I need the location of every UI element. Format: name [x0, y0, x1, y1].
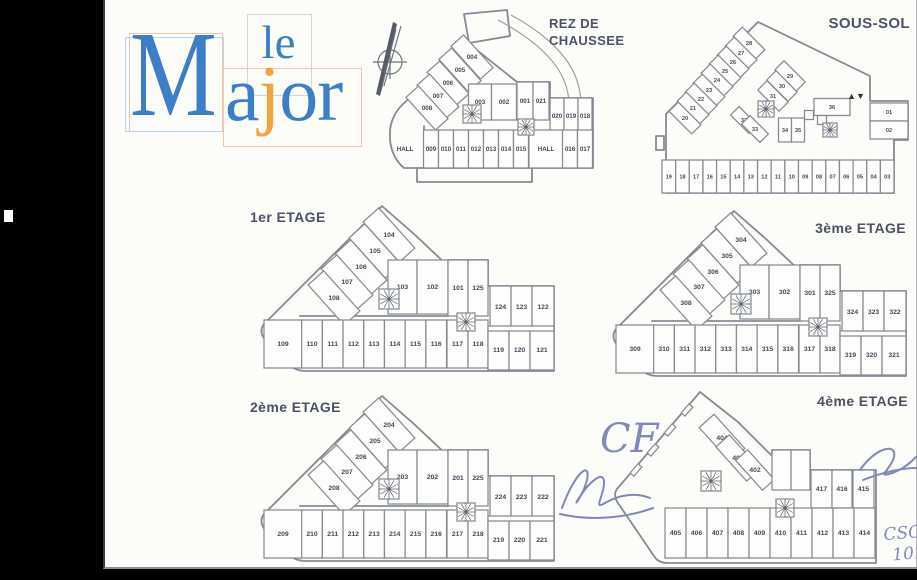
room-label: 311	[679, 346, 690, 353]
plan-outline	[464, 10, 510, 43]
room-label: 007	[433, 93, 444, 100]
hall-label: HALL	[538, 146, 555, 153]
room-label: 225	[472, 475, 484, 482]
room-label: 313	[720, 346, 732, 353]
room-label: 317	[804, 346, 816, 353]
room-label: 319	[845, 352, 857, 359]
room-label: 416	[836, 486, 848, 493]
room-label: 07	[829, 175, 835, 181]
room-label: 125	[472, 285, 484, 292]
room-label: 405	[670, 530, 682, 537]
room-label: 018	[580, 113, 591, 120]
room-label: 36	[829, 105, 835, 111]
room-label: 322	[889, 309, 901, 316]
room-label: 101	[452, 285, 464, 292]
stair-spiral-icon	[823, 123, 837, 137]
room-label: 112	[348, 341, 359, 348]
room-label: 22	[698, 97, 704, 103]
hall-label: HALL	[397, 146, 414, 153]
plan-cell	[791, 450, 810, 490]
plan-outline	[656, 136, 664, 150]
room-label: 208	[328, 485, 340, 492]
plan-title: 1er ETAGE	[250, 209, 326, 225]
room-label: 221	[536, 537, 548, 544]
floor-plan-sous-sol: 2827262524232221202930313233343536010219…	[652, 8, 917, 198]
room-label: 013	[486, 146, 497, 153]
room-label: 110	[307, 341, 318, 348]
room-label: 210	[306, 531, 318, 538]
room-label: 415	[858, 486, 870, 493]
room-label: 318	[824, 346, 836, 353]
room-label: 11	[775, 175, 781, 181]
room-label: 306	[707, 269, 719, 276]
room-label: 121	[536, 347, 548, 354]
plan-title: 4ème ETAGE	[817, 393, 908, 409]
room-label: 17	[693, 175, 699, 181]
stair-spiral-icon	[809, 318, 827, 336]
room-label: 010	[441, 146, 452, 153]
room-label: 107	[341, 279, 353, 286]
room-label: 316	[783, 346, 795, 353]
stair-spiral-icon	[463, 105, 481, 123]
room-label: 20	[682, 116, 688, 122]
room-label: 124	[495, 304, 507, 311]
plan-cell	[772, 450, 791, 490]
room-label: 23	[706, 88, 712, 94]
room-label: 109	[277, 341, 289, 348]
room-label: 324	[847, 309, 859, 316]
room-label: 118	[473, 341, 484, 348]
room-label: 411	[796, 530, 807, 537]
room-label: 211	[327, 531, 338, 538]
room-label: 08	[816, 175, 822, 181]
floor-plan-rez-de-chaussee: 0040050060070080030020010210200190180090…	[372, 8, 652, 193]
room-label: 26	[730, 60, 736, 66]
floor-plan-3eme-etage: 3043053063073083033023013253243233223093…	[594, 203, 914, 388]
plan-cell	[488, 326, 554, 331]
room-label: 10	[789, 175, 795, 181]
room-label: 302	[779, 289, 791, 296]
room-label: 301	[804, 290, 816, 297]
room-label: 014	[501, 146, 512, 153]
room-label: 24	[714, 78, 721, 84]
logo-letter-m: M	[130, 14, 217, 136]
room-label: 307	[693, 284, 705, 291]
room-label: 123	[516, 304, 528, 311]
room-label: 004	[467, 54, 478, 61]
room-label: 31	[770, 94, 776, 100]
room-label: 113	[369, 341, 380, 348]
room-label: 017	[580, 146, 591, 153]
room-label: 325	[824, 290, 836, 297]
room-label: 15	[720, 175, 726, 181]
stair-spiral-icon	[776, 499, 794, 517]
room-label: 410	[775, 530, 787, 537]
room-label: 020	[552, 113, 563, 120]
room-label: 224	[495, 494, 507, 501]
room-label: 312	[700, 346, 712, 353]
room-label: 005	[455, 67, 466, 74]
room-label: 222	[537, 494, 549, 501]
plan-cell	[840, 331, 906, 336]
plan-title: 2ème ETAGE	[250, 399, 341, 415]
room-label: 13	[748, 175, 754, 181]
room-label: 213	[368, 531, 380, 538]
room-label: 02	[886, 128, 892, 134]
room-label: 408	[733, 530, 745, 537]
room-label: 219	[493, 537, 505, 544]
room-label: 111	[327, 341, 338, 348]
room-label: 05	[857, 175, 863, 181]
room-label: 205	[369, 438, 381, 445]
room-label: 104	[383, 232, 395, 239]
room-label: 29	[787, 74, 793, 80]
room-label: 21	[690, 106, 696, 112]
room-label: 30	[779, 84, 785, 90]
plan-cell	[681, 404, 693, 416]
room-label: 119	[493, 347, 504, 354]
room-label: 27	[738, 51, 744, 57]
logo-word-ajor: ajor	[225, 55, 342, 133]
room-label: 413	[838, 530, 850, 537]
room-label: 008	[422, 105, 433, 112]
room-label: 315	[762, 346, 774, 353]
room-label: 35	[795, 128, 801, 134]
room-label: 114	[389, 341, 400, 348]
room-label: 015	[516, 146, 527, 153]
stair-spiral-icon	[457, 503, 475, 521]
plan-cell	[805, 111, 814, 120]
stair-spiral-icon	[379, 479, 399, 499]
room-label: 323	[868, 309, 880, 316]
document-sheet: M le ajor 004005006007008003002001021020…	[103, 0, 917, 569]
room-label: 34	[782, 128, 789, 134]
logo-letters-or: or	[279, 50, 342, 137]
room-label: 012	[471, 146, 482, 153]
le-major-logo: M le ajor	[105, 0, 375, 160]
room-label: 412	[817, 530, 829, 537]
room-label: 201	[452, 475, 464, 482]
room-label: 406	[691, 530, 703, 537]
room-label: 116	[431, 341, 442, 348]
stair-spiral-icon	[457, 313, 475, 331]
room-label: 204	[383, 422, 395, 429]
room-label: 120	[514, 347, 526, 354]
room-label: 01	[886, 110, 892, 116]
room-label: 117	[452, 341, 463, 348]
room-label: 28	[746, 41, 752, 47]
room-label: 310	[658, 346, 670, 353]
room-label: 402	[749, 467, 761, 474]
room-label: 04	[870, 175, 877, 181]
lift-arrows-icon: ▲▼	[847, 91, 865, 101]
scan-artifact-dot	[4, 210, 13, 222]
stair-spiral-icon	[701, 471, 721, 491]
plan-title: 3ème ETAGE	[815, 220, 906, 236]
room-label: 001	[520, 98, 531, 105]
plan-title: CHAUSSEE	[549, 33, 624, 48]
room-label: 18	[679, 175, 685, 181]
room-label: 016	[565, 146, 576, 153]
room-label: 308	[680, 300, 692, 307]
room-label: 209	[277, 531, 289, 538]
room-label: 33	[752, 127, 758, 133]
stair-spiral-icon	[758, 101, 774, 117]
room-label: 09	[802, 175, 808, 181]
floor-plan-1er-etage: 1041051061071081031021011251241231221091…	[242, 198, 562, 383]
room-label: 202	[427, 474, 439, 481]
room-label: 207	[341, 469, 353, 476]
floor-plan-4eme-etage: 4044034024174164154054064074084094104114…	[592, 386, 917, 576]
plan-title: SOUS-SOL	[828, 15, 910, 32]
room-label: 14	[734, 175, 741, 181]
plan-cell	[664, 424, 676, 436]
stair-spiral-icon	[518, 119, 534, 135]
room-label: 021	[536, 98, 547, 105]
room-label: 217	[452, 531, 464, 538]
room-label: 409	[754, 530, 766, 537]
room-label: 12	[761, 175, 767, 181]
room-label: 06	[843, 175, 849, 181]
room-label: 417	[816, 486, 828, 493]
stair-spiral-icon	[379, 289, 399, 309]
room-label: 304	[735, 237, 747, 244]
room-label: 220	[514, 537, 526, 544]
room-label: 19	[666, 175, 672, 181]
logo-letter-j: j	[259, 50, 280, 137]
room-label: 212	[348, 531, 360, 538]
room-label: 009	[426, 146, 437, 153]
room-label: 321	[888, 352, 900, 359]
plan-title: REZ DE	[549, 16, 599, 31]
room-label: 216	[431, 531, 443, 538]
room-label: 414	[859, 530, 871, 537]
floor-plan-2eme-etage: 2042052062072082032022012252242232222092…	[242, 388, 562, 573]
plan-cell	[647, 444, 659, 456]
room-label: 108	[328, 295, 340, 302]
room-label: 122	[537, 304, 549, 311]
room-label: 305	[721, 253, 733, 260]
room-label: 106	[355, 264, 367, 271]
room-label: 218	[472, 531, 484, 538]
room-label: 011	[456, 146, 467, 153]
room-label: 102	[427, 284, 439, 291]
room-label: 407	[712, 530, 724, 537]
room-label: 223	[516, 494, 528, 501]
room-label: 16	[707, 175, 713, 181]
plan-cell	[630, 464, 642, 476]
plan-cell	[488, 516, 554, 521]
room-label: 320	[866, 352, 878, 359]
room-label: 314	[741, 346, 753, 353]
room-label: 105	[369, 248, 381, 255]
logo-letter-a: a	[225, 50, 259, 137]
room-label: 309	[629, 346, 641, 353]
room-label: 03	[884, 175, 890, 181]
room-label: 215	[410, 531, 422, 538]
room-label: 25	[722, 69, 728, 75]
room-label: 019	[566, 113, 577, 120]
room-label: 002	[499, 99, 510, 106]
stair-spiral-icon	[731, 294, 751, 314]
room-label: 214	[389, 531, 401, 538]
plan-outline	[417, 168, 532, 182]
room-label: 006	[443, 80, 454, 87]
room-label: 115	[410, 341, 421, 348]
room-label: 206	[355, 454, 367, 461]
